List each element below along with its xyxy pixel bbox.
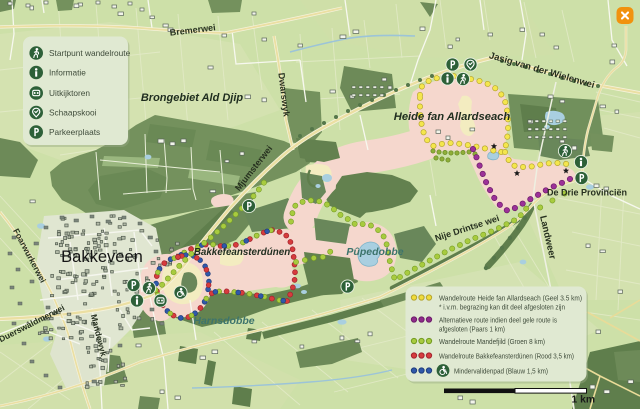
svg-text:Wandelroute Bakkefeansterdünen: Wandelroute Bakkefeansterdünen (Rood 3,5… — [439, 351, 574, 360]
svg-text:Wandelroute Mandefjild (Groen: Wandelroute Mandefjild (Groen 8 km) — [439, 337, 545, 346]
svg-text:afgesloten (Paars 1 km): afgesloten (Paars 1 km) — [439, 325, 505, 334]
svg-text:Wandelroute Heide fan Allardse: Wandelroute Heide fan Allardseach (Geel … — [439, 293, 582, 302]
svg-text:De Drie Provinciën: De Drie Provinciën — [547, 188, 627, 198]
svg-text:Uitkijktoren: Uitkijktoren — [49, 88, 90, 98]
svg-text:Pûpedobbe: Pûpedobbe — [346, 246, 403, 258]
svg-text:Mindervalidenpad (Blauw 1,5 km: Mindervalidenpad (Blauw 1,5 km) — [454, 366, 548, 375]
svg-text:Parkeerplaats: Parkeerplaats — [49, 127, 100, 137]
svg-text:1 km: 1 km — [572, 395, 595, 406]
svg-text:Brongebiet Ald Djip: Brongebiet Ald Djip — [141, 92, 244, 104]
svg-text:Bakkefeansterdúnen: Bakkefeansterdúnen — [194, 247, 290, 258]
svg-text:Harnsdobbe: Harnsdobbe — [193, 315, 254, 327]
svg-text:Bakkeveen: Bakkeveen — [61, 248, 143, 266]
svg-text:Heide fan Allardseach: Heide fan Allardseach — [394, 111, 511, 123]
svg-text:Alternatieve route indien deel: Alternatieve route indien deel gele rout… — [439, 315, 557, 324]
svg-text:Informatie: Informatie — [49, 68, 86, 78]
svg-text:Schaapskooi: Schaapskooi — [49, 108, 97, 118]
svg-text:* i.v.m. begrazing kan dit dee: * i.v.m. begrazing kan dit deel afgeslot… — [439, 303, 565, 312]
svg-text:Startpunt wandelroute: Startpunt wandelroute — [49, 48, 131, 58]
